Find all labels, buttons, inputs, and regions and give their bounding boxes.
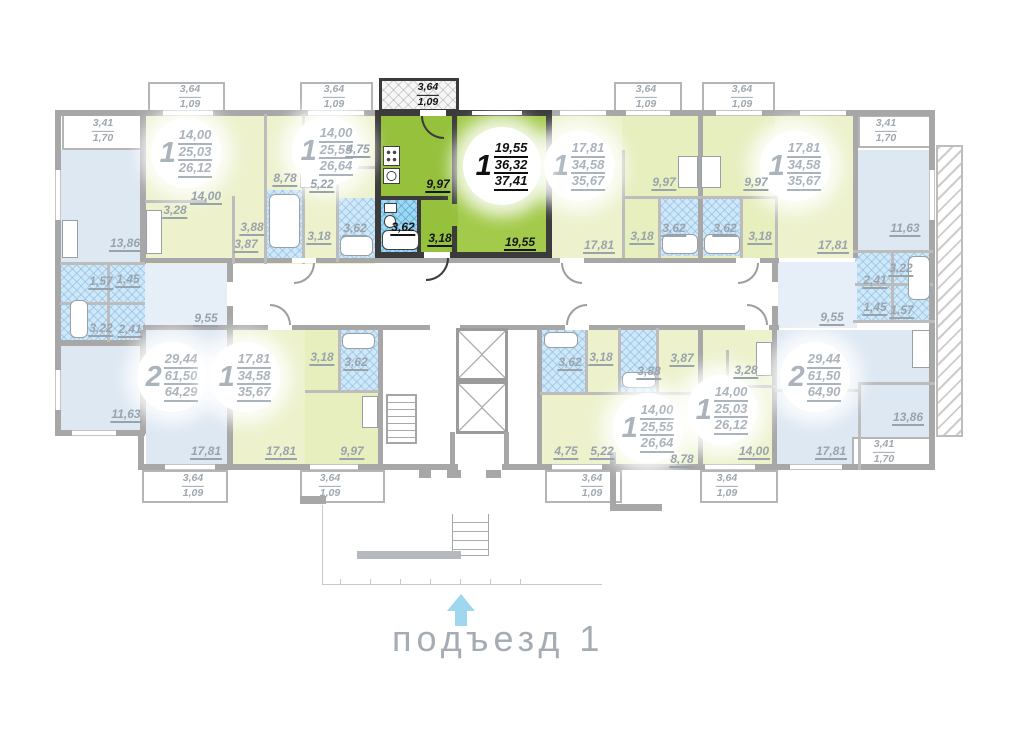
- wall-highlighted: [375, 252, 552, 258]
- porch-line: [322, 505, 323, 585]
- area-label: 14,00: [738, 444, 770, 458]
- area-label: 1,45: [115, 272, 140, 286]
- area-label: 3,87: [233, 237, 258, 251]
- apartment-badge[interactable]: 117,8134,5835,67: [760, 131, 830, 201]
- balcony-label: 3,411,70: [92, 117, 114, 145]
- wall-highlighted: [375, 110, 381, 258]
- bathtub-icon: [662, 234, 698, 254]
- area-label: 3,62: [557, 355, 582, 369]
- partition: [618, 328, 621, 394]
- kitchen-unit-icon: [362, 396, 378, 428]
- area-label: 3,18: [629, 229, 654, 243]
- apartment-badge[interactable]: 117,8134,5835,67: [210, 342, 280, 412]
- partition: [853, 320, 935, 323]
- area-label: 11,63: [110, 407, 141, 421]
- door-gap: [745, 325, 769, 330]
- door-gap: [565, 325, 589, 330]
- porch-wall: [610, 504, 662, 511]
- area-label-highlighted: 9,97: [425, 177, 450, 191]
- hatched-strip: [936, 145, 963, 437]
- apartment-badge-highlighted[interactable]: 119,5536,3237,41: [463, 127, 541, 205]
- area-label: 3,62: [661, 221, 686, 235]
- partition: [338, 330, 341, 391]
- wall-highlighted: [375, 110, 552, 116]
- partition: [60, 262, 145, 265]
- window: [705, 464, 755, 470]
- stove-icon: [383, 146, 400, 166]
- window: [55, 370, 61, 410]
- wall: [450, 432, 455, 468]
- area-label: 17,81: [265, 444, 297, 458]
- washbasin-icon: [384, 203, 397, 213]
- area-label: 2,41: [862, 273, 887, 287]
- window: [55, 170, 61, 220]
- window-highlighted: [472, 110, 522, 116]
- room-right-hall-9-55[interactable]: [775, 262, 857, 328]
- area-label: 14,00: [190, 189, 222, 203]
- balcony-label: 3,641,09: [323, 83, 345, 111]
- entrance-caption: подъезд 1: [392, 618, 604, 660]
- wall-highlighted: [452, 116, 457, 204]
- balcony: [700, 470, 778, 503]
- porch-wall: [610, 452, 616, 510]
- entrance-platform: [357, 551, 461, 559]
- porch-tick: [370, 579, 371, 585]
- kitchen-unit-icon: [701, 156, 721, 188]
- porch-line: [322, 584, 602, 585]
- elevator-shaft: [456, 381, 508, 434]
- area-label: 3,62: [712, 221, 737, 235]
- area-label: 8,78: [669, 452, 694, 466]
- stairwell: [386, 394, 417, 444]
- balcony-label: 3,641,09: [319, 472, 341, 500]
- balcony-label: 3,641,09: [179, 83, 201, 111]
- area-label: 11,63: [889, 221, 920, 235]
- partition: [656, 328, 659, 394]
- wall: [504, 432, 509, 468]
- area-label: 1,57: [889, 303, 914, 317]
- kitchen-unit-icon: [62, 220, 78, 258]
- area-label: 17,81: [817, 238, 849, 252]
- column: [419, 470, 431, 478]
- porch-tick: [340, 579, 341, 585]
- door-arc: [561, 263, 582, 284]
- partition: [623, 196, 700, 199]
- bathtub-icon: [70, 300, 88, 338]
- column: [447, 470, 461, 478]
- column: [486, 470, 501, 478]
- apartment-badge[interactable]: 117,8134,5835,67: [544, 131, 614, 201]
- bathtub-icon: [544, 332, 578, 348]
- area-label: 5,22: [309, 177, 334, 191]
- balcony-label: 3,641,09: [182, 472, 204, 500]
- window: [310, 464, 358, 470]
- partition: [540, 392, 699, 395]
- door-arc: [747, 304, 768, 325]
- porch-tick: [400, 579, 401, 585]
- area-label: 3,62: [343, 355, 368, 369]
- area-label: 1,57: [88, 274, 113, 288]
- porch-tick: [490, 579, 491, 585]
- area-label: 3,88: [239, 220, 264, 234]
- door-arc: [566, 304, 587, 325]
- balcony-label: 3,641,09: [731, 83, 753, 111]
- entrance-arrow-icon: [447, 594, 475, 611]
- partition: [264, 114, 267, 264]
- area-label: 3,62: [342, 221, 367, 235]
- area-label: 3,18: [747, 229, 772, 243]
- door-arc: [738, 263, 759, 284]
- balcony-label: 3,641,09: [581, 472, 603, 500]
- apartment-badge[interactable]: 114,0025,0326,12: [687, 375, 757, 445]
- wall: [853, 114, 858, 258]
- area-label: 3,18: [309, 350, 334, 364]
- wall: [55, 340, 145, 346]
- area-label-highlighted: 3,18: [427, 231, 452, 245]
- door-arc: [270, 304, 291, 325]
- area-label: 13,86: [892, 410, 924, 424]
- entrance-steps: [452, 514, 489, 556]
- area-label: 3,28: [733, 363, 758, 377]
- balcony-label-highlighted: 3,641,09: [417, 81, 439, 109]
- window: [560, 110, 606, 116]
- bathtub-icon: [342, 333, 375, 349]
- area-label: 9,97: [339, 444, 364, 458]
- apartment-badge[interactable]: 114,0025,0326,12: [151, 118, 221, 188]
- elevator-shaft: [456, 328, 508, 381]
- area-label: 17,81: [815, 444, 847, 458]
- area-label: 3,88: [636, 364, 661, 378]
- partition: [740, 196, 743, 258]
- bathtub-icon: [269, 194, 300, 248]
- partition: [622, 150, 625, 258]
- window: [790, 464, 842, 470]
- area-label: 1,45: [862, 300, 887, 314]
- porch-tick: [430, 579, 431, 585]
- window: [72, 430, 116, 436]
- area-label: 3,18: [306, 229, 331, 243]
- area-label: 3,22: [88, 321, 113, 335]
- wall-corridor: [143, 258, 779, 263]
- area-label: 5,22: [589, 444, 614, 458]
- area-label: 9,97: [743, 175, 768, 189]
- balcony-label: 3,641,09: [716, 472, 738, 500]
- wall: [378, 325, 383, 470]
- area-label: 4,75: [553, 444, 578, 458]
- partition: [858, 382, 935, 385]
- door-arc-entrance: [426, 258, 449, 281]
- kitchen-unit-icon: [678, 156, 698, 188]
- partition: [858, 385, 861, 470]
- area-label-highlighted: 19,55: [504, 235, 536, 249]
- apartment-badge[interactable]: 229,4461,5064,90: [780, 342, 850, 412]
- wall-highlighted: [452, 226, 457, 252]
- window: [929, 170, 935, 220]
- balcony-label: 3,411,70: [873, 438, 895, 466]
- sink-icon: [383, 168, 400, 184]
- window: [800, 110, 846, 116]
- window: [165, 464, 215, 470]
- area-label: 3,87: [669, 351, 694, 365]
- area-label: 13,86: [109, 236, 141, 250]
- kitchen-unit-icon: [146, 210, 162, 254]
- door-gap: [227, 282, 233, 306]
- door-gap: [268, 325, 292, 330]
- kitchen-unit-icon: [912, 330, 930, 368]
- area-label: 3,28: [162, 203, 187, 217]
- area-label: 17,81: [190, 444, 222, 458]
- wall-highlighted: [381, 196, 448, 200]
- bathtub-icon: [704, 234, 740, 254]
- balcony-label: 3,641,09: [635, 83, 657, 111]
- apartment-badge[interactable]: 229,4461,5064,29: [137, 342, 207, 412]
- window: [552, 464, 602, 470]
- area-label: 8,78: [272, 171, 297, 185]
- area-label: 2,41: [117, 322, 142, 336]
- area-label: 3,22: [888, 261, 913, 275]
- wall: [772, 325, 777, 470]
- area-label: 17,81: [583, 238, 615, 252]
- partition: [305, 390, 379, 393]
- door-arc: [294, 263, 315, 284]
- door-gap: [772, 282, 778, 306]
- bathtub-icon: [340, 236, 373, 256]
- partition: [700, 196, 775, 199]
- wall: [537, 325, 542, 470]
- area-label: 4,75: [345, 142, 370, 156]
- balcony-label: 3,411,70: [875, 117, 897, 145]
- area-label: 9,55: [193, 311, 218, 325]
- partition: [232, 196, 235, 264]
- porch-tick: [520, 579, 521, 585]
- floor-plan: подъезд 1 13,86 14,00 3,28 8,78 4,75 5,2…: [0, 0, 1024, 732]
- porch-tick: [460, 579, 461, 585]
- area-label-highlighted: 3,62: [390, 220, 415, 234]
- area-label: 9,97: [651, 175, 676, 189]
- area-label: 3,18: [588, 350, 613, 364]
- area-label: 9,55: [819, 310, 844, 324]
